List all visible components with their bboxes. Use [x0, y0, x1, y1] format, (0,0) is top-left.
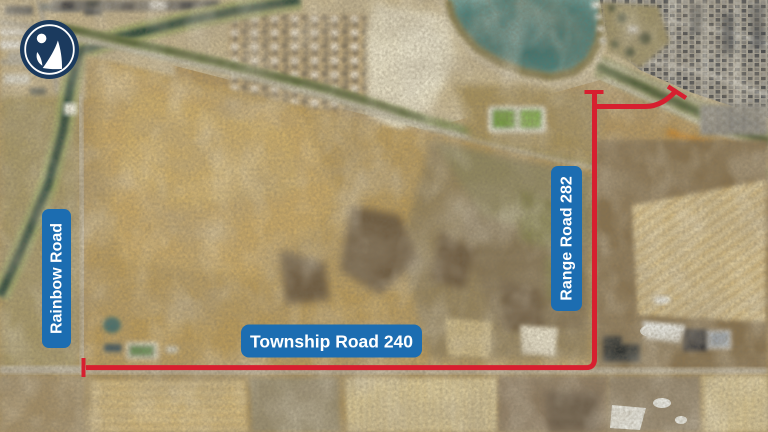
svg-text:Range Road 282: Range Road 282 [559, 176, 576, 301]
svg-text:Rainbow Road: Rainbow Road [49, 223, 66, 334]
svg-text:Township Road 240: Township Road 240 [250, 332, 413, 352]
